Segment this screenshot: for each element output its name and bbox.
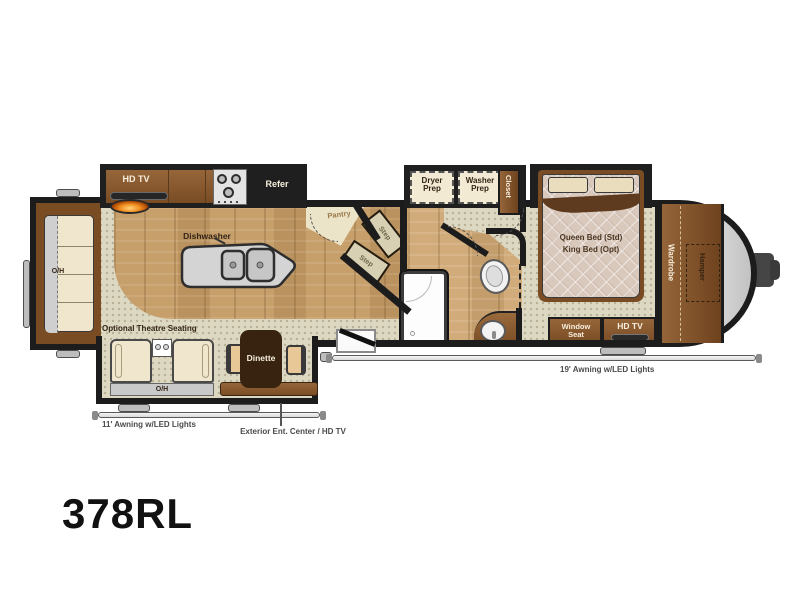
bedroom-tv-label: HD TV: [608, 322, 652, 331]
theatre-overhead-strip: O/H: [110, 383, 214, 396]
ent-center-pointer-line: [280, 403, 282, 426]
cabinet-divider-2: [205, 170, 206, 203]
awning-front-cap-right: [756, 354, 762, 363]
dishwasher-label: Dishwasher: [172, 232, 242, 241]
awning-rear-cap-left: [92, 411, 98, 420]
toilet-seat: [483, 263, 505, 288]
ent-center-label: Exterior Ent. Center / HD TV: [228, 428, 358, 437]
cupholder-right: [163, 344, 169, 350]
washer-prep: Washer Prep: [458, 171, 502, 204]
model-number: 378RL: [62, 490, 193, 538]
bedroom-bracket: [600, 347, 646, 355]
sofa-cushion-line-1: [57, 246, 93, 247]
bed-label-line2: King Bed (Opt): [550, 246, 632, 254]
stove: [213, 169, 247, 205]
burner-2: [231, 174, 241, 184]
dinette-label: Dinette: [241, 354, 281, 363]
theatre-console: [152, 339, 172, 357]
bed-pillow-left: [548, 177, 588, 193]
cupholder-left: [155, 344, 161, 350]
wall-bedroom-front: [655, 200, 662, 347]
rear-overhead-label: O/H: [45, 268, 71, 275]
washer-prep-label: Washer Prep: [464, 177, 496, 194]
kitchen-island: [178, 242, 300, 290]
sink-drain-left: [230, 262, 236, 268]
cabinet-divider-1: [168, 170, 169, 203]
seat-left-back-line: [115, 344, 122, 378]
awning-rear-label: 11' Awning w/LED Lights: [102, 421, 242, 430]
awning-front-cap-left: [326, 354, 332, 363]
hitch-pin-nub: [770, 260, 780, 280]
living-tv-label: HD TV: [108, 175, 164, 184]
dinette-chair-right: [286, 345, 306, 375]
awning-rear-cap-right: [320, 411, 326, 420]
rear-slide-bracket-top: [56, 189, 80, 197]
rear-slide-rail-left: [23, 260, 30, 328]
wall-bath-left: [400, 204, 407, 272]
closet: Closet: [498, 169, 520, 215]
hamper-label: Hamper: [698, 253, 707, 281]
rear-slide: O/H: [30, 197, 101, 350]
wardrobe-cabinet: Wardrobe Hamper: [660, 204, 724, 343]
wardrobe-label: Wardrobe: [666, 244, 674, 281]
fireplace: [110, 199, 150, 214]
awning-rear-bar: [98, 412, 320, 418]
wardrobe-door-line: [680, 206, 681, 341]
rear-slide-bracket-bottom: [56, 350, 80, 358]
theatre-label: Optional Theatre Seating: [102, 325, 216, 333]
theatre-overhead-label: O/H: [147, 386, 177, 393]
awning-front-label: 19' Awning w/LED Lights: [560, 366, 690, 375]
bed-label-line1: Queen Bed (Std): [550, 234, 632, 242]
slide-bracket-2: [228, 404, 260, 412]
dryer-prep-label: Dryer Prep: [417, 177, 447, 194]
pocket-door-dashed: [519, 264, 521, 308]
living-tv-icon: [110, 192, 168, 200]
entertainment-cabinet: HD TV: [106, 170, 213, 203]
seat-right-back-line: [202, 344, 209, 378]
theatre-seat-right: [172, 339, 214, 383]
shower-drain: [410, 331, 415, 336]
dryer-prep: Dryer Prep: [410, 171, 454, 204]
stove-knobs: [218, 201, 242, 203]
bath-sink: [480, 320, 506, 342]
bed-pillow-right: [594, 177, 634, 193]
refer-label: Refer: [252, 180, 302, 189]
bed: Queen Bed (Std) King Bed (Opt): [538, 170, 644, 302]
theatre-seat-left: [110, 339, 152, 383]
sofa-cushion-line-3: [57, 302, 93, 303]
bottom-slide: O/H: [96, 336, 318, 404]
sink-faucet: [492, 331, 496, 339]
burner-1: [217, 174, 227, 184]
floorplan-canvas: Dishwasher Pantry Step Step Window Seat …: [0, 0, 800, 600]
window-seat-label: Window Seat: [554, 323, 598, 339]
sink-drain-right: [257, 262, 263, 268]
dinette-table: Dinette: [240, 330, 282, 388]
rear-sofa: O/H: [44, 215, 94, 332]
slide-bracket-1: [118, 404, 150, 412]
burner-3: [223, 187, 234, 198]
wall-sink-right: [516, 308, 522, 347]
closet-label: Closet: [504, 175, 512, 198]
shower-door-arc: [406, 276, 432, 302]
hamper-section: Hamper: [686, 244, 720, 302]
awning-front-bar: [332, 355, 756, 361]
